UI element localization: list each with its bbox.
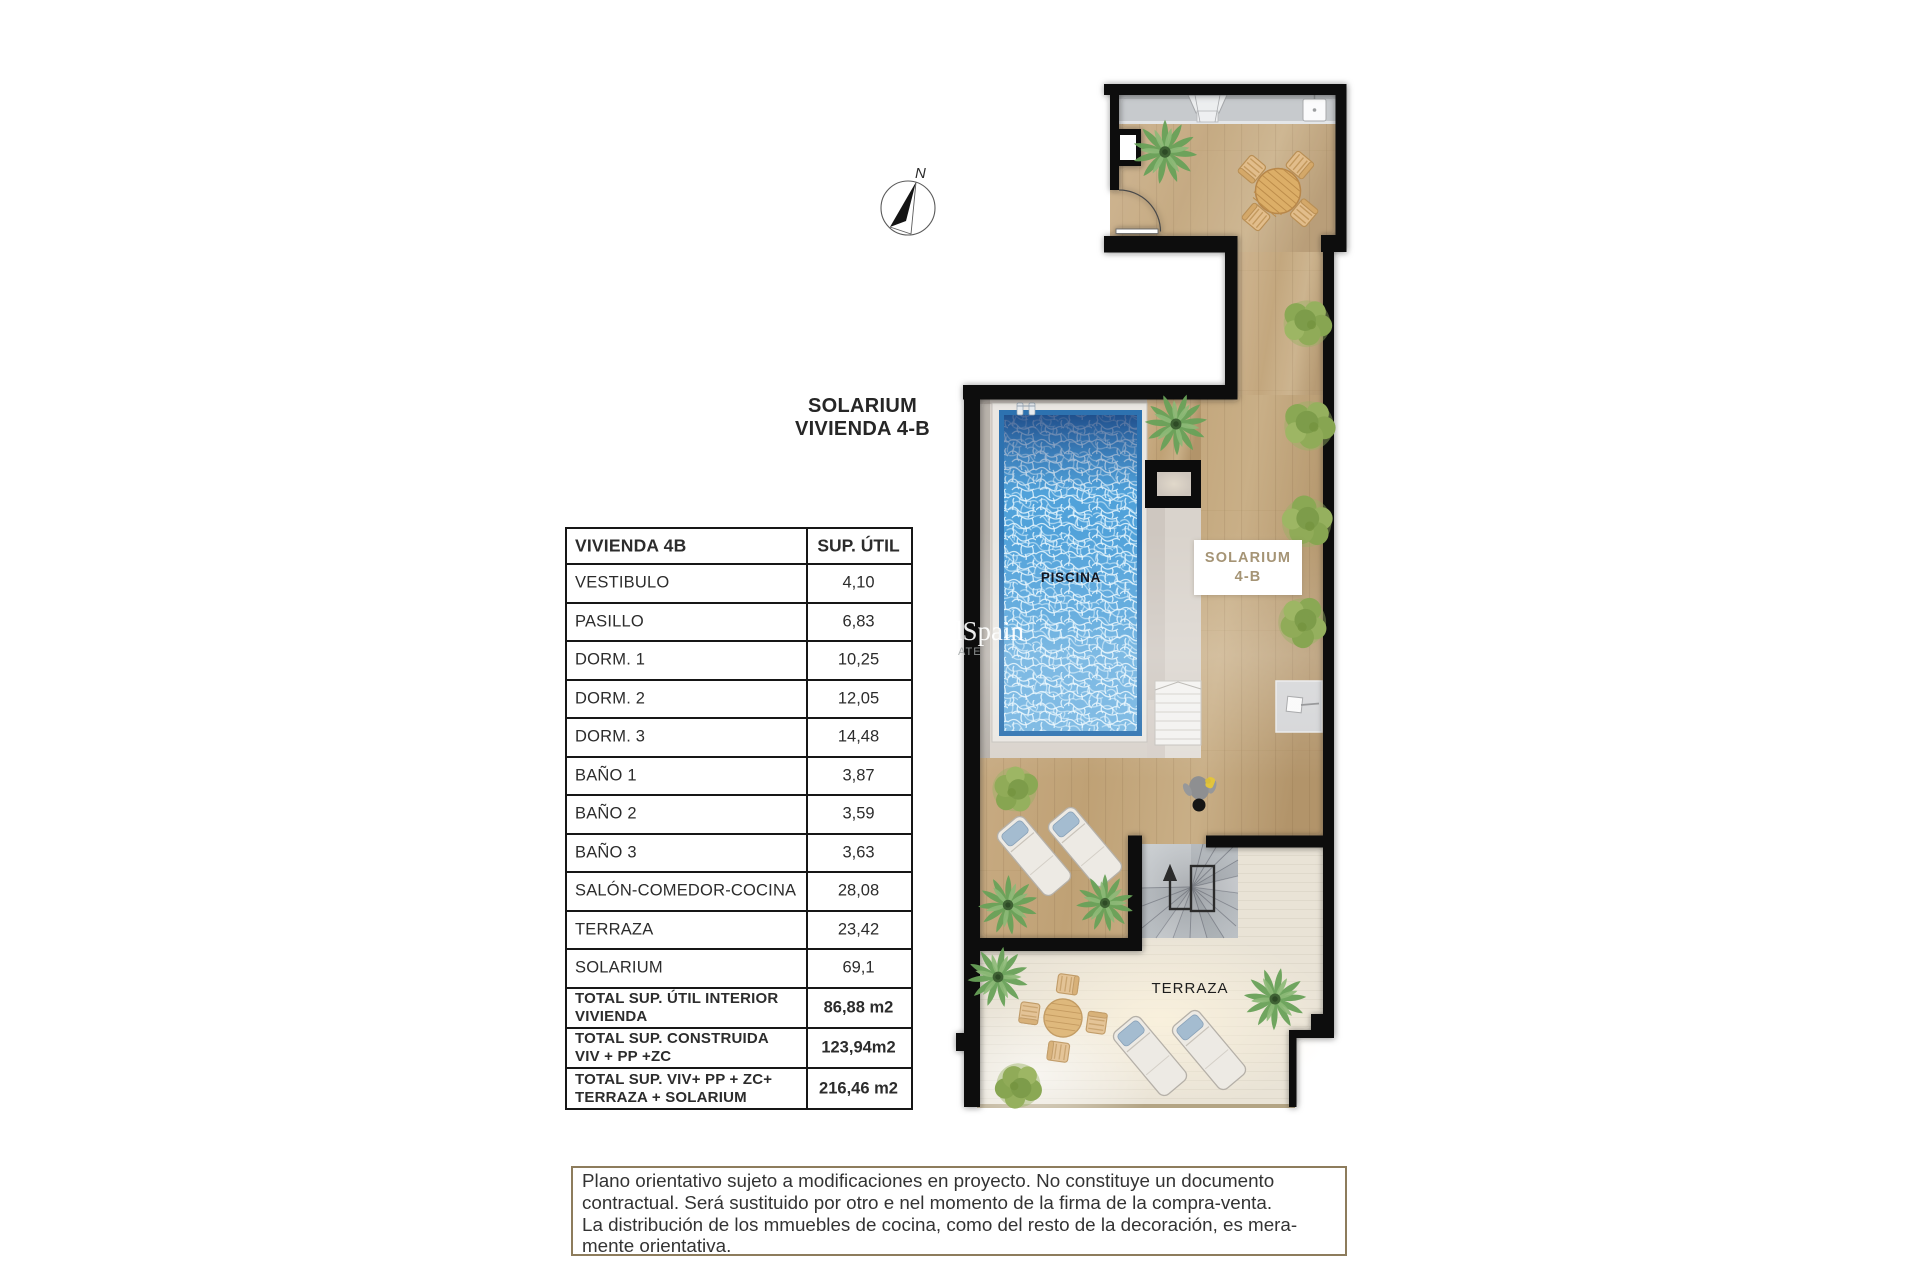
svg-text:N: N: [915, 165, 926, 182]
